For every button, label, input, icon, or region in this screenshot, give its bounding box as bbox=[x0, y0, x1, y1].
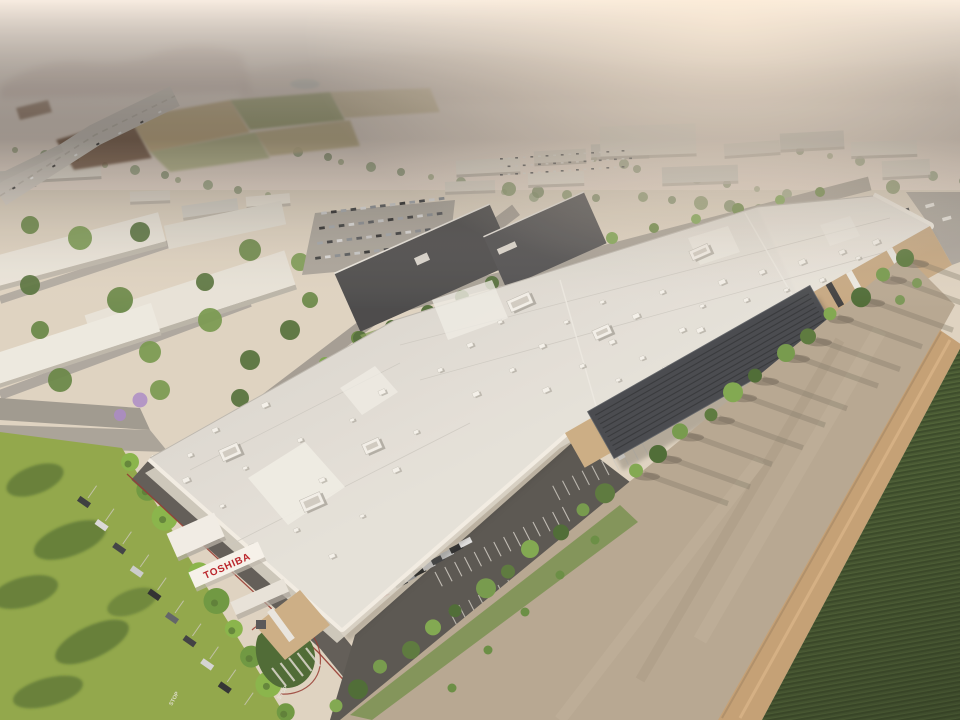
aerial-photo-toshiba-facility: TOSHIBA FedEx STOP STOP bbox=[0, 0, 960, 720]
aerial-photo-scene: TOSHIBA FedEx STOP STOP bbox=[0, 0, 960, 720]
warm-tint bbox=[0, 0, 960, 720]
